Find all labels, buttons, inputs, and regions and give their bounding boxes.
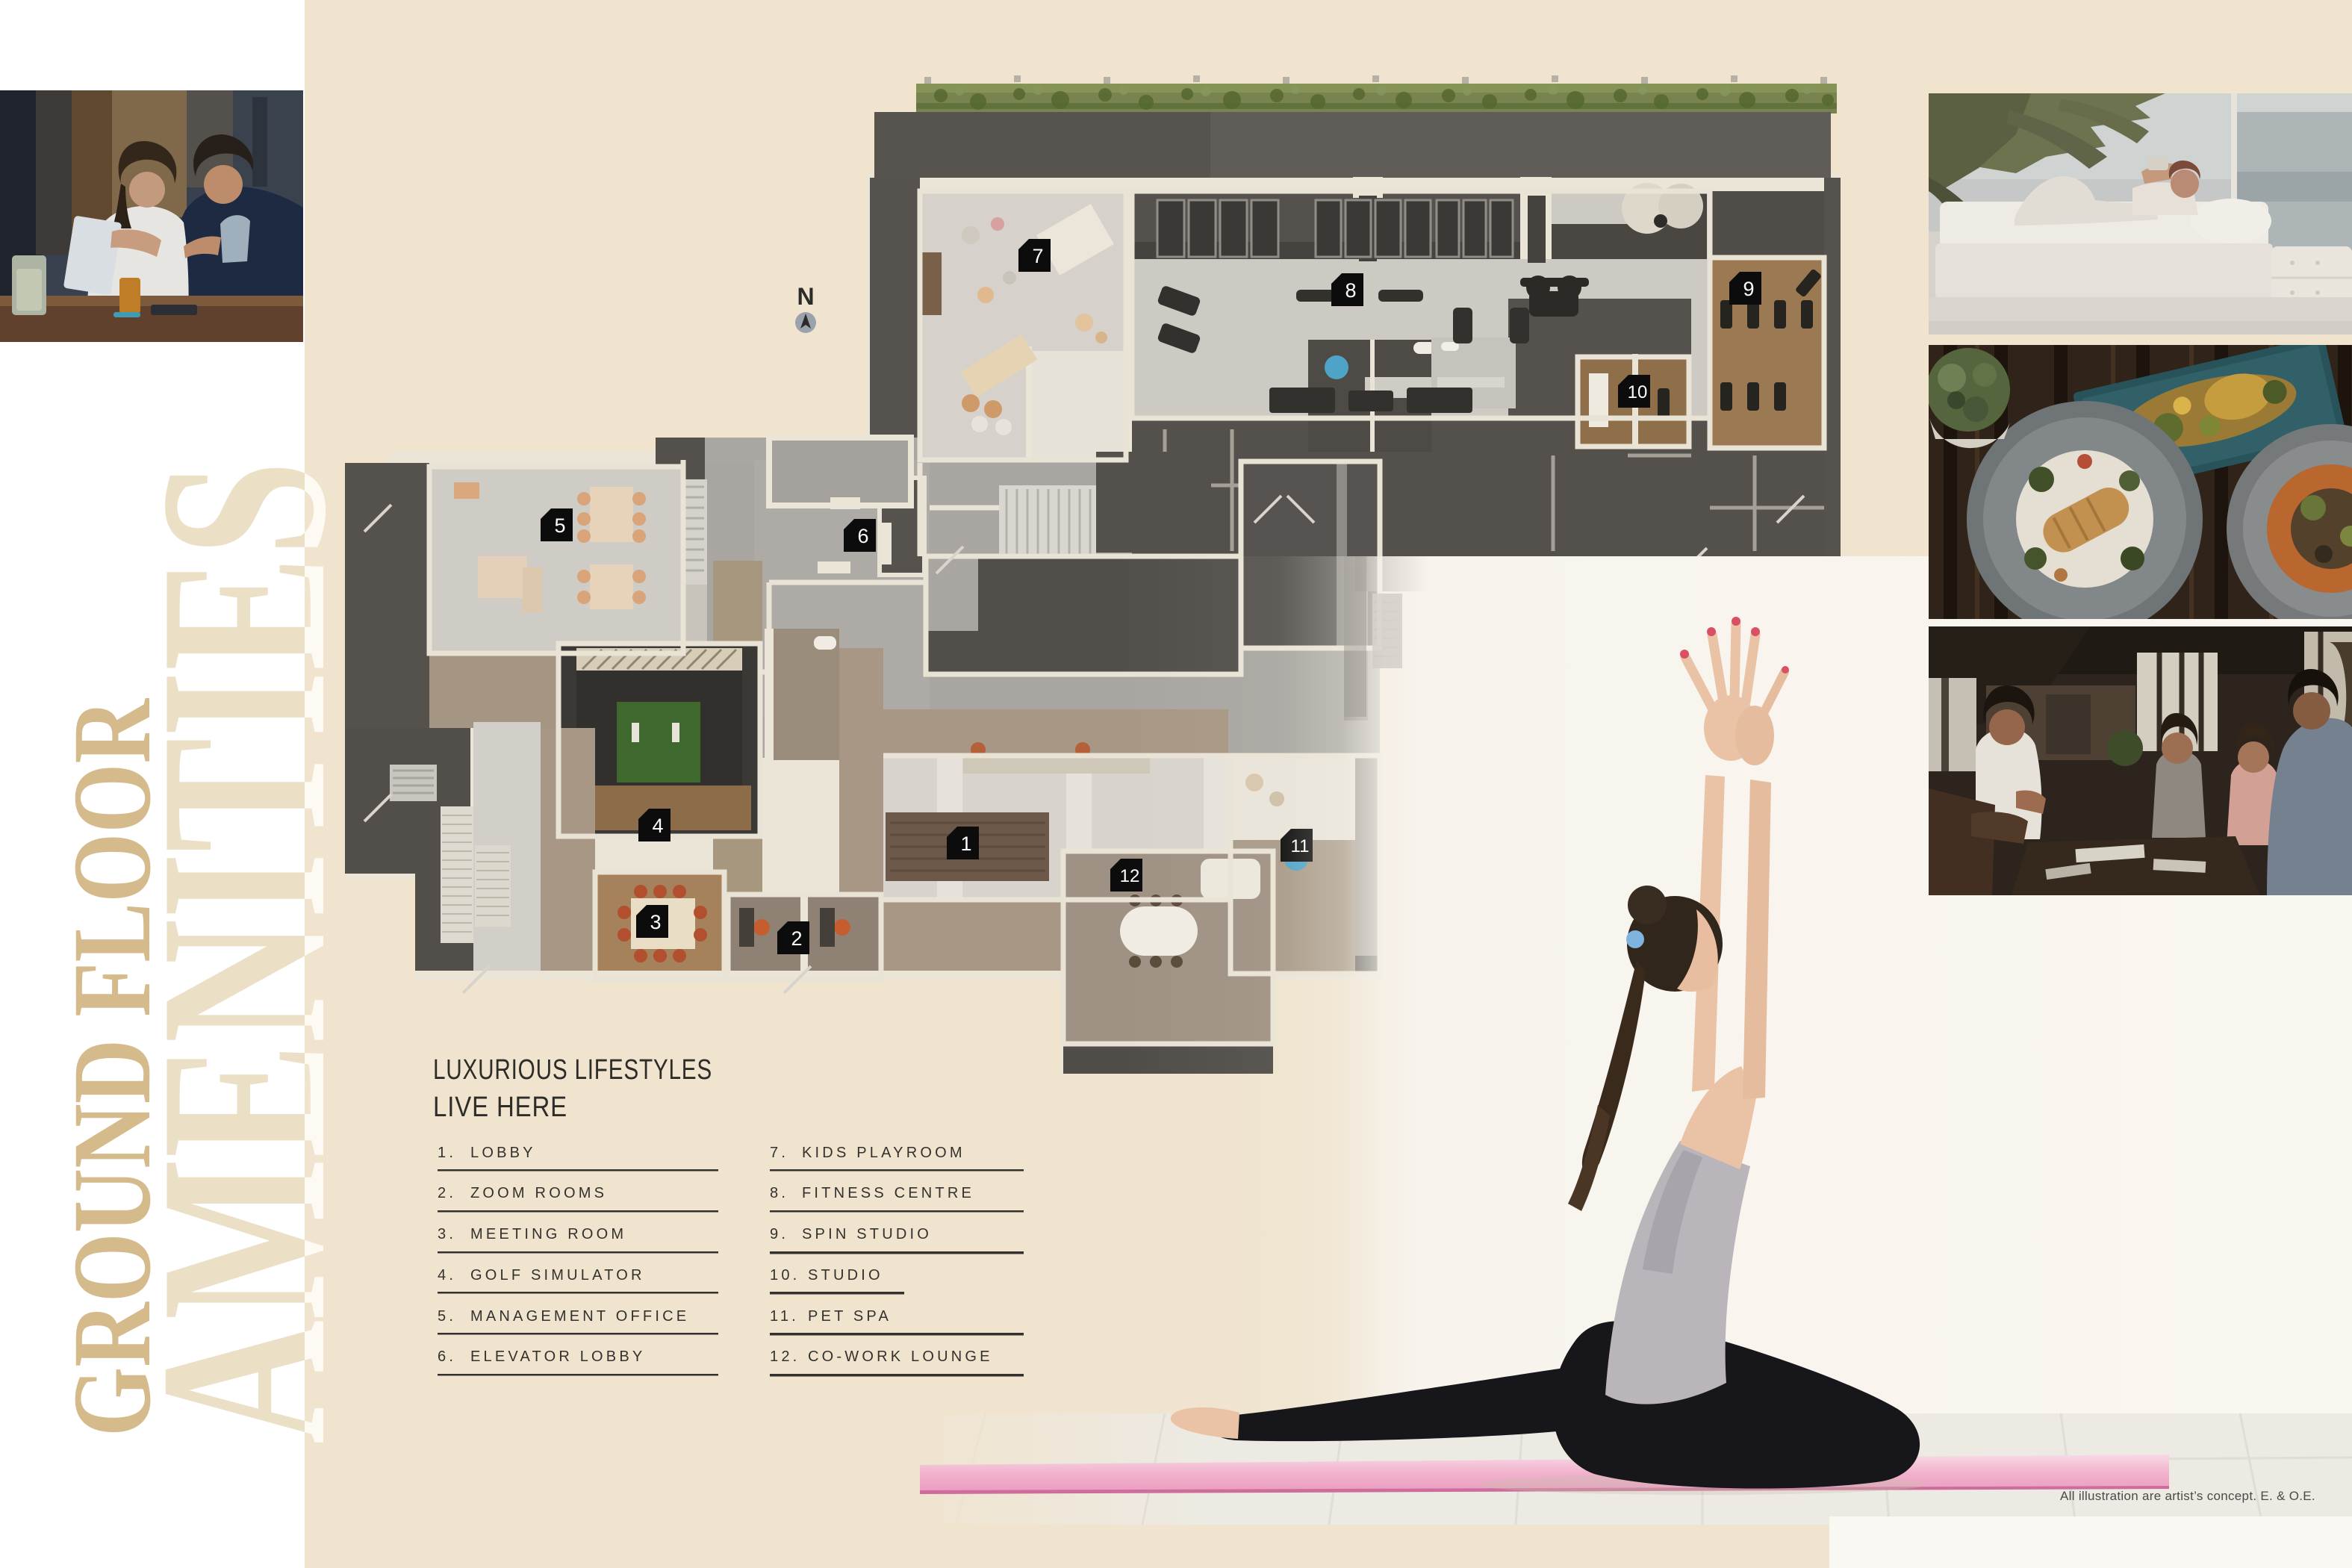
- svg-text:7.: 7.: [770, 1145, 788, 1161]
- svg-text:5: 5: [554, 514, 565, 537]
- svg-text:1: 1: [960, 833, 971, 855]
- svg-text:7: 7: [1032, 245, 1043, 267]
- svg-text:FITNESS CENTRE: FITNESS CENTRE: [802, 1185, 974, 1201]
- svg-text:All illustration are artist’s: All illustration are artist’s concept. E…: [2060, 1489, 2315, 1503]
- svg-text:1.: 1.: [438, 1145, 456, 1161]
- svg-text:8.: 8.: [770, 1185, 788, 1201]
- svg-text:2.: 2.: [438, 1185, 456, 1201]
- svg-text:9.: 9.: [770, 1226, 788, 1242]
- svg-text:9: 9: [1743, 278, 1754, 300]
- svg-text:MEETING ROOM: MEETING ROOM: [470, 1226, 626, 1242]
- svg-text:8: 8: [1345, 279, 1356, 302]
- svg-text:3.: 3.: [438, 1226, 456, 1242]
- svg-text:KIDS PLAYROOM: KIDS PLAYROOM: [802, 1145, 965, 1161]
- svg-text:6: 6: [857, 525, 868, 547]
- svg-text:CO-WORK LOUNGE: CO-WORK LOUNGE: [808, 1348, 993, 1365]
- svg-text:10: 10: [1628, 382, 1648, 402]
- svg-text:MANAGEMENT OFFICE: MANAGEMENT OFFICE: [470, 1308, 689, 1325]
- svg-text:LUXURIOUS LIFESTYLES: LUXURIOUS LIFESTYLES: [433, 1054, 712, 1086]
- svg-text:LIVE HERE: LIVE HERE: [433, 1092, 567, 1123]
- svg-text:10.: 10.: [770, 1267, 800, 1284]
- svg-text:PET SPA: PET SPA: [808, 1308, 892, 1325]
- svg-text:5.: 5.: [438, 1308, 456, 1325]
- svg-text:11.: 11.: [770, 1308, 799, 1325]
- svg-text:3: 3: [650, 911, 661, 933]
- svg-text:SPIN STUDIO: SPIN STUDIO: [802, 1226, 932, 1242]
- svg-text:12.: 12.: [770, 1348, 800, 1365]
- svg-text:4: 4: [652, 815, 663, 837]
- svg-text:ELEVATOR LOBBY: ELEVATOR LOBBY: [470, 1348, 645, 1365]
- svg-text:LOBBY: LOBBY: [470, 1145, 536, 1161]
- svg-text:GROUND FLOOR: GROUND FLOOR: [50, 698, 174, 1437]
- svg-text:4.: 4.: [438, 1267, 456, 1284]
- svg-text:6.: 6.: [438, 1348, 456, 1365]
- svg-text:ZOOM ROOMS: ZOOM ROOMS: [470, 1185, 607, 1201]
- svg-text:GOLF SIMULATOR: GOLF SIMULATOR: [470, 1267, 645, 1284]
- svg-text:2: 2: [791, 927, 802, 950]
- svg-text:STUDIO: STUDIO: [808, 1267, 883, 1284]
- svg-text:N: N: [797, 283, 814, 310]
